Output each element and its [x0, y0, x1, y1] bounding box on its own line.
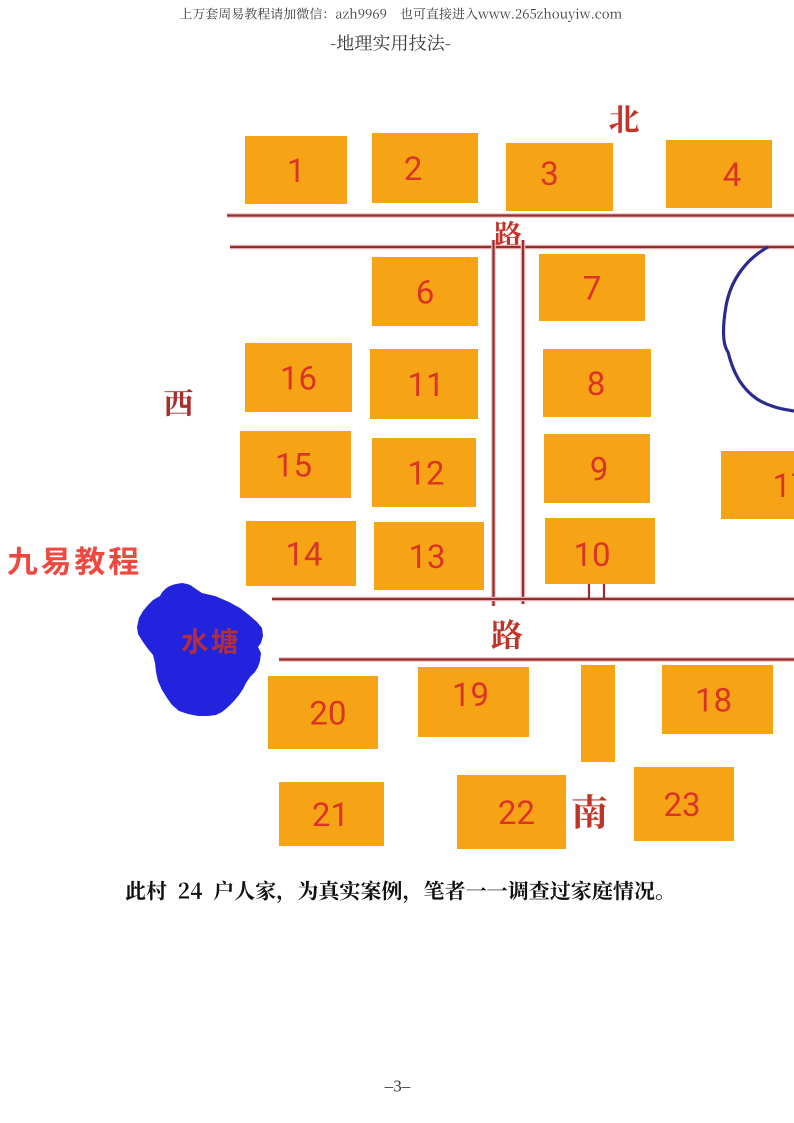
svg-text:–3–: –3– [384, 1077, 411, 1096]
